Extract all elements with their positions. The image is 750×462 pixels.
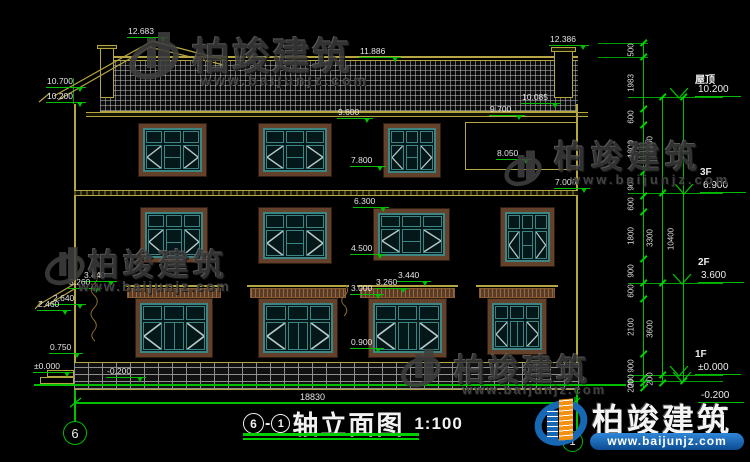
dim-value: 1983 (627, 74, 636, 92)
dim-chain-line (643, 43, 644, 388)
dim-value: 10400 (667, 228, 676, 250)
dim-value: 900 (627, 264, 636, 277)
dim-tick (659, 379, 666, 386)
dim-value: 200 (646, 372, 655, 385)
dim-value: 900 (627, 359, 636, 372)
dim-value: 1800 (627, 140, 636, 158)
dim-value: 3300 (646, 136, 655, 154)
dim-value: 600 (627, 284, 636, 297)
dim-value: 1800 (627, 227, 636, 245)
dim-value: 600 (627, 197, 636, 210)
logo-building-orange-icon (559, 398, 573, 440)
dim-value: 3600 (646, 320, 655, 338)
axis-bubble-6: 6 (63, 421, 87, 445)
cad-elevation-drawing: 12.68311.88612.38610.70010.2009.60010.08… (0, 0, 750, 462)
logo-building-blue-icon (547, 410, 558, 441)
dim-value: 600 (627, 110, 636, 123)
dim-value: 900 (627, 177, 636, 190)
dim-chain-line (662, 97, 663, 383)
baijun-brand-logo: 柏竣建筑 www.baijunjz.com (530, 392, 750, 460)
dim-tick (680, 377, 687, 384)
axis-bubble-6-label: 6 (71, 426, 78, 441)
dim-value: 500 (627, 43, 636, 56)
dim-value: 2100 (627, 318, 636, 336)
dim-value: 200 (627, 379, 636, 392)
dim-value: 3300 (646, 229, 655, 247)
dim-chain-line (683, 97, 684, 381)
brand-url-badge: www.baijunjz.com (590, 433, 744, 450)
